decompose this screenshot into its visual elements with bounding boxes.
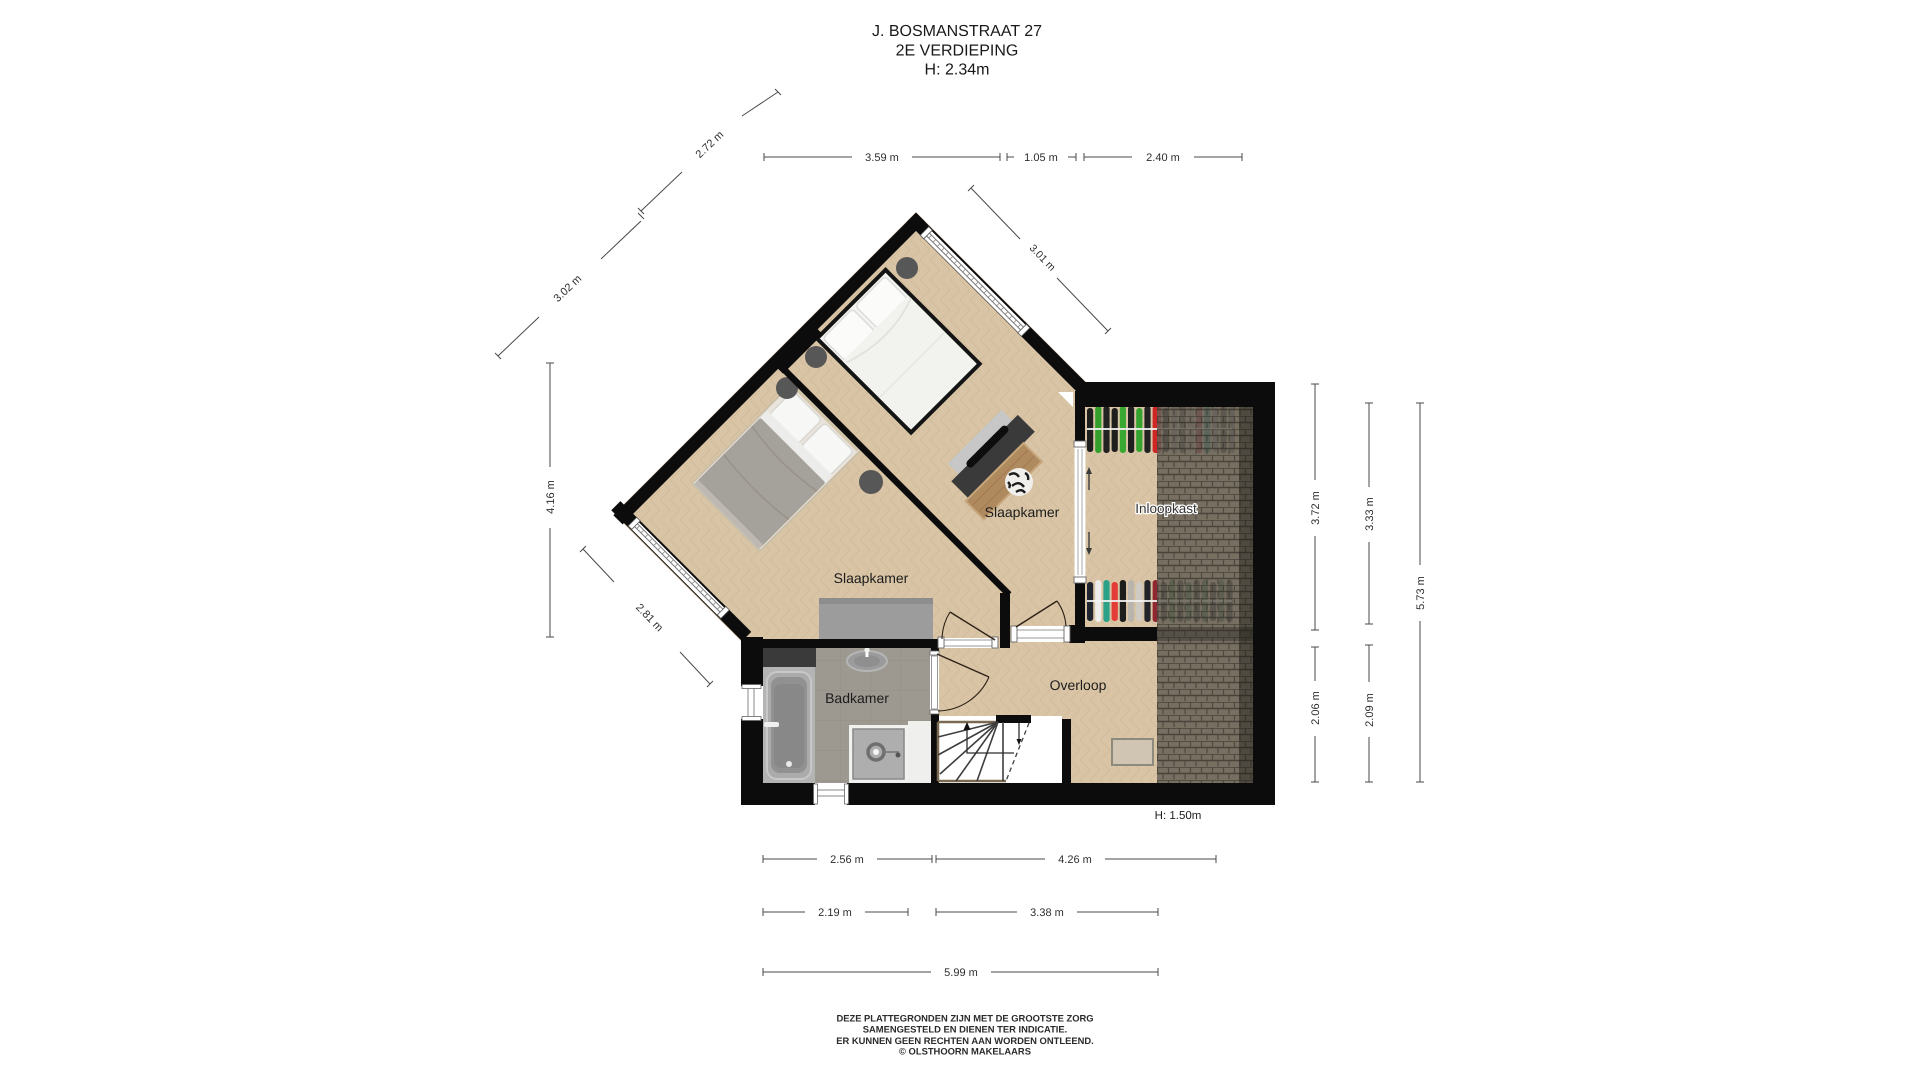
svg-text:2.19 m: 2.19 m — [818, 907, 852, 919]
svg-text:ER KUNNEN GEEN RECHTEN AAN WOR: ER KUNNEN GEEN RECHTEN AAN WORDEN ONTLEE… — [836, 1035, 1093, 1046]
svg-text:Inloopkast: Inloopkast — [1135, 501, 1197, 516]
svg-text:3.38 m: 3.38 m — [1030, 907, 1064, 919]
svg-text:2.56 m: 2.56 m — [830, 854, 864, 866]
svg-text:SAMENGESTELD EN DIENEN TER IND: SAMENGESTELD EN DIENEN TER INDICATIE. — [863, 1024, 1068, 1035]
svg-text:5.73 m: 5.73 m — [1415, 576, 1427, 610]
svg-text:© OLSTHOORN MAKELAARS: © OLSTHOORN MAKELAARS — [899, 1046, 1031, 1057]
svg-text:Slaapkamer: Slaapkamer — [985, 504, 1060, 520]
svg-text:Badkamer: Badkamer — [825, 690, 889, 706]
svg-text:1.05 m: 1.05 m — [1024, 152, 1058, 164]
svg-text:Slaapkamer: Slaapkamer — [834, 570, 909, 586]
svg-text:DEZE PLATTEGRONDEN ZIJN MET DE: DEZE PLATTEGRONDEN ZIJN MET DE GROOTSTE … — [836, 1013, 1093, 1024]
svg-text:2E VERDIEPING: 2E VERDIEPING — [896, 43, 1019, 60]
svg-text:2.09 m: 2.09 m — [1364, 693, 1376, 727]
svg-text:2.06 m: 2.06 m — [1310, 691, 1322, 725]
svg-text:4.16 m: 4.16 m — [545, 480, 557, 514]
svg-text:4.26 m: 4.26 m — [1058, 854, 1092, 866]
svg-text:J. BOSMANSTRAAT 27: J. BOSMANSTRAAT 27 — [872, 23, 1042, 40]
svg-text:Overloop: Overloop — [1050, 677, 1107, 693]
svg-text:H: 1.50m: H: 1.50m — [1155, 810, 1202, 822]
svg-text:2.40 m: 2.40 m — [1146, 152, 1180, 164]
svg-text:3.72 m: 3.72 m — [1310, 491, 1322, 525]
svg-text:H: 2.34m: H: 2.34m — [925, 62, 990, 79]
svg-text:3.59 m: 3.59 m — [865, 152, 899, 164]
svg-text:3.33 m: 3.33 m — [1364, 497, 1376, 531]
svg-text:5.99 m: 5.99 m — [944, 967, 978, 979]
